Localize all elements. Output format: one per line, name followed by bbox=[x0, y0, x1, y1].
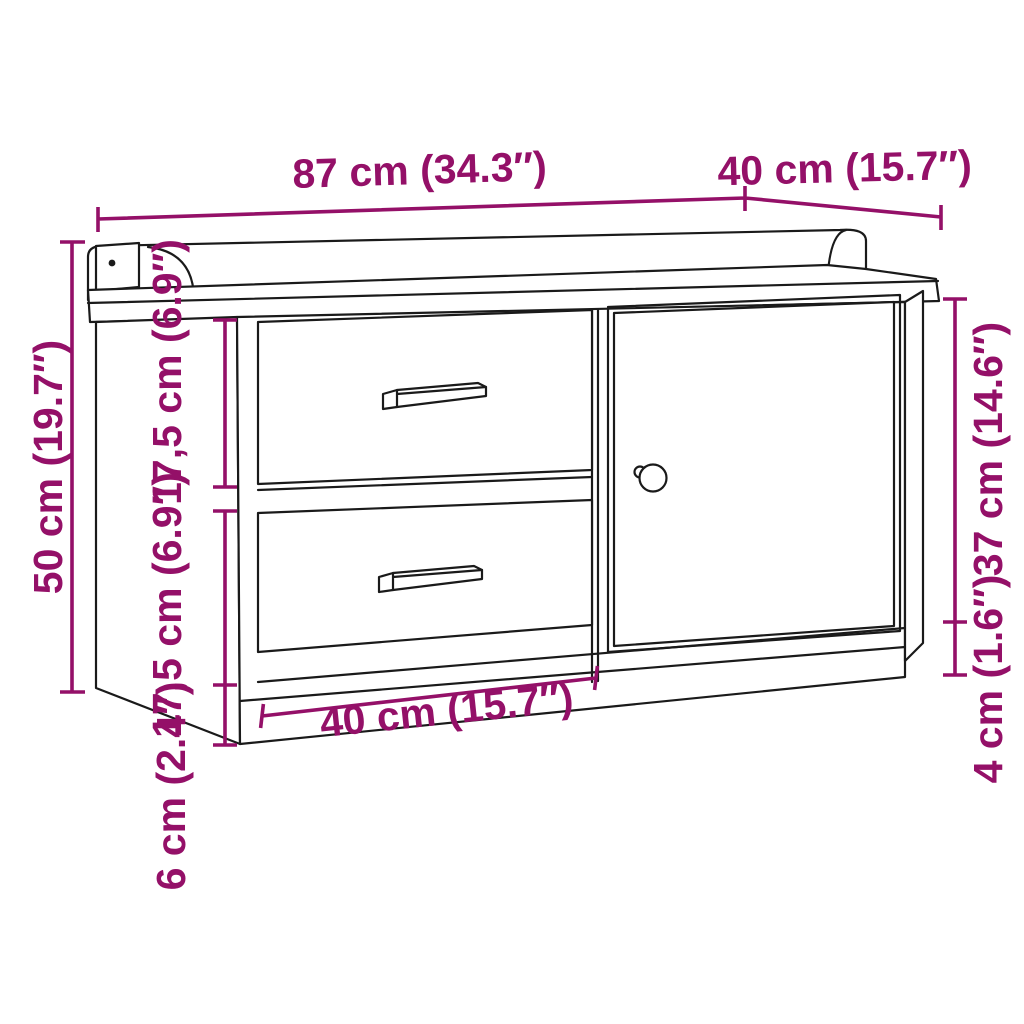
furniture-dimension-diagram: 87 cm (34.3″) 40 cm (15.7″) 50 cm (19.7″… bbox=[0, 0, 1024, 1024]
dim-label-bottom-gap: 4 cm (1.6″) bbox=[965, 575, 1011, 784]
dim-label-top-depth: 40 cm (15.7″) bbox=[717, 142, 973, 195]
dim-label-plinth-height: 6 cm (2.4″) bbox=[148, 682, 194, 891]
screw-hole bbox=[109, 260, 116, 267]
dim-line-door-height bbox=[943, 299, 967, 675]
right-side-panel bbox=[905, 291, 923, 661]
left-panel-top bbox=[96, 243, 139, 291]
dim-label-drawer-top-height: 17,5 cm (6.9″) bbox=[144, 239, 190, 505]
diagram-canvas: 87 cm (34.3″) 40 cm (15.7″) 50 cm (19.7″… bbox=[0, 0, 1024, 1024]
dim-label-top-width: 87 cm (34.3″) bbox=[292, 143, 548, 197]
dim-line-top bbox=[98, 186, 941, 232]
door-knob bbox=[640, 465, 667, 492]
dim-label-door-height: 37 cm (14.6″) bbox=[965, 322, 1011, 576]
dim-label-overall-height: 50 cm (19.7″) bbox=[25, 340, 71, 594]
